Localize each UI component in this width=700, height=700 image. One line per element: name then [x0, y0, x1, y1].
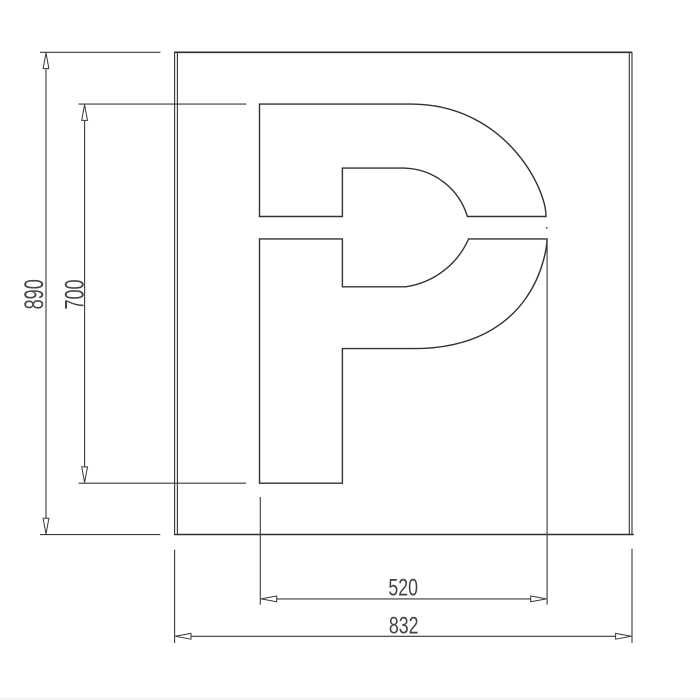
svg-text:890: 890 [18, 279, 48, 309]
svg-text:832: 832 [389, 613, 419, 639]
svg-text:520: 520 [388, 575, 418, 601]
svg-text:700: 700 [59, 279, 89, 309]
